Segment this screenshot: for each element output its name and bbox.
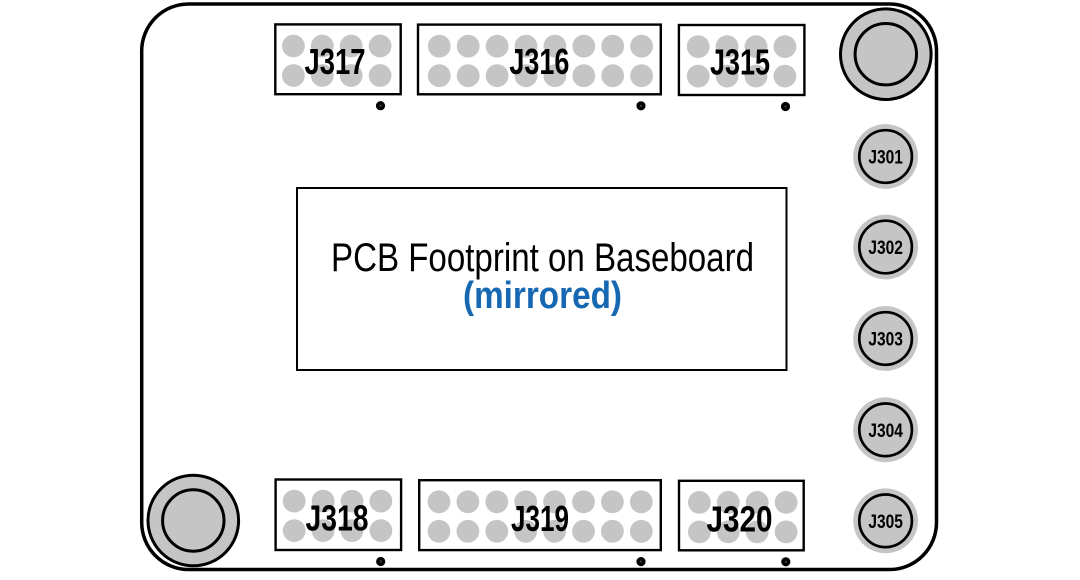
svg-text:J317: J317 (305, 41, 366, 82)
svg-text:(mirrored): (mirrored) (463, 275, 622, 317)
svg-text:J305: J305 (868, 512, 903, 533)
svg-text:J320: J320 (707, 498, 773, 539)
svg-text:J303: J303 (868, 330, 903, 351)
svg-text:J304: J304 (868, 421, 903, 442)
svg-text:PCB Footprint on Baseboard: PCB Footprint on Baseboard (331, 236, 754, 280)
svg-text:J315: J315 (710, 42, 770, 83)
svg-text:J318: J318 (306, 498, 369, 539)
svg-text:J316: J316 (509, 41, 569, 82)
svg-text:J302: J302 (868, 238, 903, 259)
svg-text:J319: J319 (511, 498, 569, 539)
svg-text:J301: J301 (868, 148, 903, 169)
